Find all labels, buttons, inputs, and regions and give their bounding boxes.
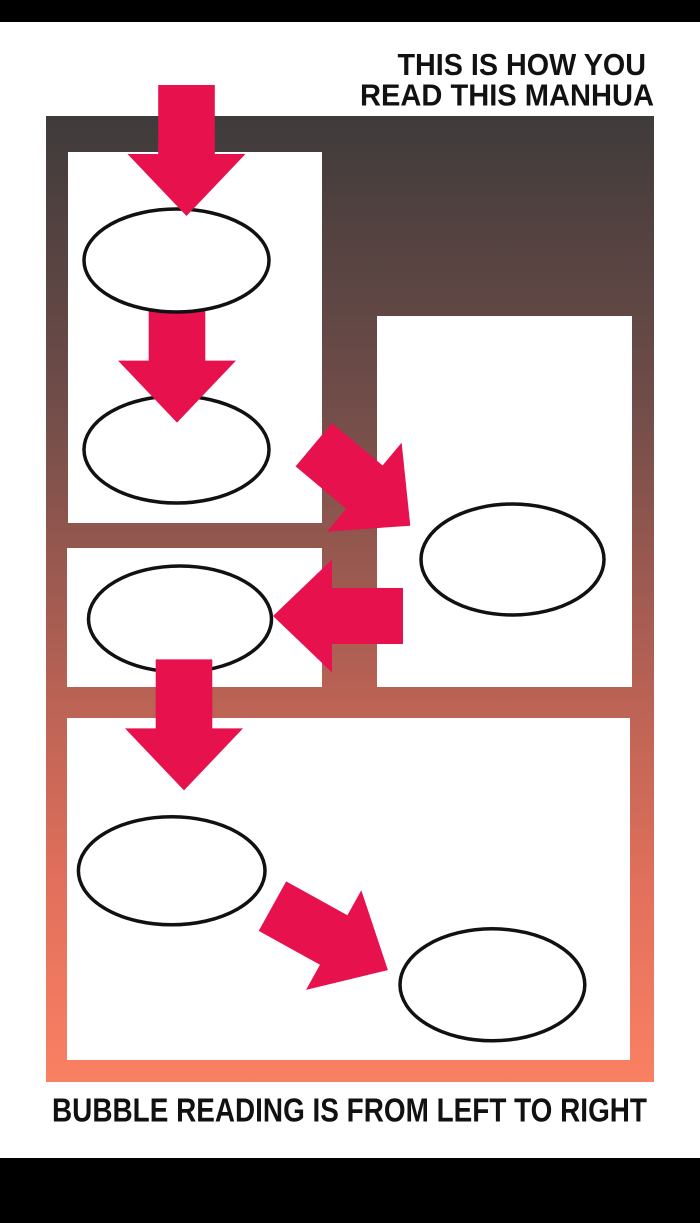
- svg-text:READ THIS MANHUA: READ THIS MANHUA: [360, 78, 654, 113]
- svg-text:BUBBLE READING IS FROM LEFT TO: BUBBLE READING IS FROM LEFT TO RIGHT: [52, 1092, 647, 1129]
